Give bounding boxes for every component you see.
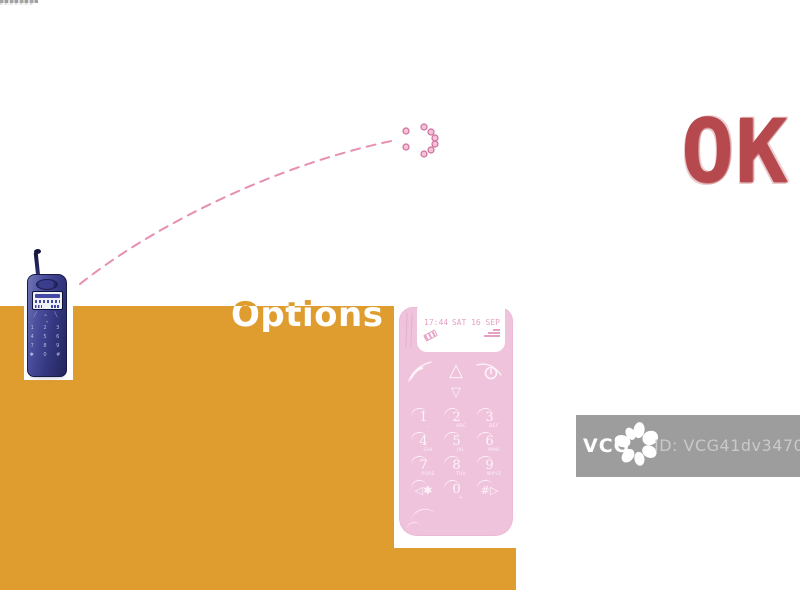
watermark-id-text: ID: VCG41dv347007 bbox=[654, 436, 800, 455]
key-0[interactable]: 0+ bbox=[440, 483, 473, 506]
blue-keypad-row-2: 4 5 6 bbox=[28, 333, 66, 342]
decorative-swoosh bbox=[409, 506, 437, 523]
key-1[interactable]: 1., bbox=[407, 411, 440, 434]
pink-phone-screen: 17:44 SAT 16 SEP bbox=[417, 307, 505, 352]
blue-phone: ╱ ▵ ╲ ▿ 1 2 3 4 5 6 7 8 9 ✱ 0 # bbox=[27, 252, 67, 377]
key-4[interactable]: 4GHI bbox=[407, 435, 440, 458]
blue-keypad-nav-row: ╱ ▵ ╲ bbox=[28, 312, 66, 319]
key-9[interactable]: 9WXYZ bbox=[473, 459, 506, 482]
scan-artifact-strip-2 bbox=[0, 3, 34, 5]
pink-screen-date: SAT 16 SEP bbox=[452, 318, 500, 327]
illustration-canvas: Options Options OK bbox=[0, 0, 800, 590]
blue-keypad-row-4: ✱ 0 # bbox=[28, 351, 66, 360]
key-2[interactable]: 2ABC bbox=[440, 411, 473, 434]
key-3[interactable]: 3DEF bbox=[473, 411, 506, 434]
key-hash[interactable]: #▷ bbox=[473, 483, 506, 506]
pink-screen-status-row: 17:44 SAT 16 SEP bbox=[424, 318, 500, 327]
blue-phone-body: ╱ ▵ ╲ ▿ 1 2 3 4 5 6 7 8 9 ✱ 0 # bbox=[27, 274, 67, 377]
signal-bars-icon bbox=[484, 329, 500, 337]
key-5[interactable]: 5JKL bbox=[440, 435, 473, 458]
pink-phone-side-lines bbox=[405, 313, 412, 347]
blue-keypad-row-3: 7 8 9 bbox=[28, 342, 66, 351]
nav-down-key[interactable]: ▽ bbox=[399, 386, 513, 399]
blue-screen-status-icons bbox=[35, 305, 60, 308]
dashed-trajectory-line bbox=[80, 140, 396, 284]
blue-screen-text-line bbox=[35, 300, 60, 303]
watermark-badge: VCG ID: VCG41dv347007 bbox=[576, 415, 800, 477]
nav-up-key[interactable]: △ bbox=[399, 362, 513, 380]
pink-phone: 17:44 SAT 16 SEP △ ▽ 1., 2ABC 3DEF 4GHI … bbox=[399, 307, 513, 536]
signal-icon bbox=[51, 305, 60, 308]
blue-phone-screen bbox=[32, 291, 63, 310]
battery-icon bbox=[423, 329, 438, 341]
blue-screen-title-bar bbox=[35, 294, 60, 298]
key-7[interactable]: 7PQRS bbox=[407, 459, 440, 482]
dotted-smiley-icon bbox=[403, 124, 438, 157]
decorative-swoosh-2 bbox=[405, 520, 421, 530]
battery-icon bbox=[35, 305, 42, 308]
blue-keypad-row-1: 1 2 3 bbox=[28, 324, 66, 333]
pink-screen-time: 17:44 bbox=[424, 318, 448, 327]
key-8[interactable]: 8TUV bbox=[440, 459, 473, 482]
ok-text: OK bbox=[681, 108, 789, 196]
key-6[interactable]: 6MNO bbox=[473, 435, 506, 458]
key-star[interactable]: ◁✱ bbox=[407, 483, 440, 506]
blue-phone-earpiece bbox=[36, 279, 58, 290]
blue-phone-keypad: ╱ ▵ ╲ ▿ 1 2 3 4 5 6 7 8 9 ✱ 0 # bbox=[28, 312, 66, 360]
pink-phone-keypad: 1., 2ABC 3DEF 4GHI 5JKL 6MNO 7PQRS 8TUV … bbox=[407, 411, 506, 506]
